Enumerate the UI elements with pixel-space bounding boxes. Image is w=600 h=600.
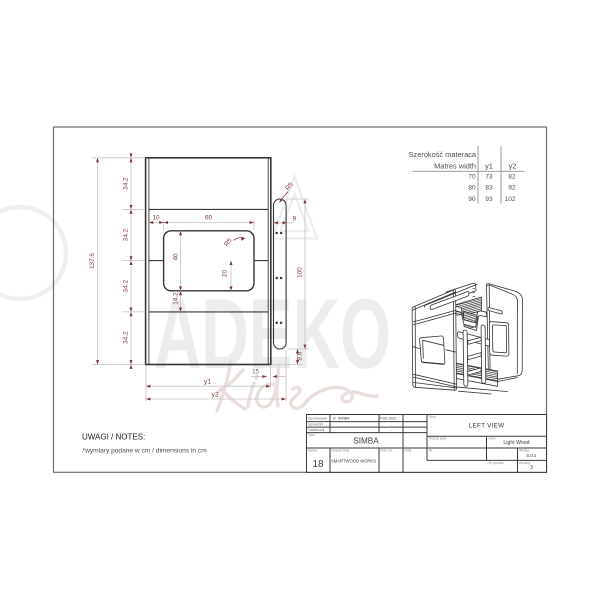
svg-text:Arkuszy: Arkuszy	[519, 461, 531, 465]
svg-text:SIMBA: SIMBA	[353, 436, 379, 445]
svg-text:90: 90	[468, 196, 476, 203]
svg-text:y2: y2	[509, 162, 517, 171]
svg-text:Sprawdził: Sprawdził	[308, 422, 323, 426]
svg-text:92: 92	[508, 185, 516, 192]
svg-text:Data: Data	[405, 449, 412, 453]
svg-text:Numer: Numer	[308, 449, 319, 453]
svg-text:93: 93	[485, 196, 493, 203]
svg-text:14.2: 14.2	[172, 292, 179, 305]
svg-text:Konstruował: Konstruował	[308, 416, 327, 420]
svg-text:3: 3	[530, 465, 533, 471]
svg-text:Tytuł: Tytuł	[308, 433, 315, 437]
svg-text:34.2: 34.2	[122, 331, 129, 344]
svg-text:100: 100	[297, 267, 304, 278]
svg-text:9.6: 9.6	[297, 351, 304, 360]
svg-text:Kolor: Kolor	[489, 437, 497, 441]
svg-text:P.03.2022: P.03.2022	[380, 417, 396, 421]
svg-text:y2: y2	[212, 392, 219, 399]
svg-text:Nazwa firmy: Nazwa firmy	[332, 449, 350, 453]
svg-text:137.6: 137.6	[89, 253, 96, 269]
svg-text:LEFT VIEW: LEFT VIEW	[469, 423, 505, 430]
svg-text:70: 70	[468, 173, 476, 180]
svg-text:20: 20	[221, 270, 228, 278]
svg-text:40: 40	[172, 253, 179, 261]
svg-text:10: 10	[152, 215, 160, 222]
svg-text:D. SIMBA: D. SIMBA	[333, 417, 350, 421]
svg-text:5.0.1: 5.0.1	[526, 453, 537, 458]
svg-text:y1: y1	[204, 379, 211, 386]
svg-text:ADEKO: ADEKO	[154, 278, 391, 389]
svg-text:82: 82	[508, 173, 516, 180]
svg-text:*wymiary podane w cm / dimensi: *wymiary podane w cm / dimensions in cm	[83, 447, 208, 454]
svg-text:y1: y1	[485, 162, 493, 171]
svg-text:18: 18	[312, 459, 324, 470]
svg-text:34.2: 34.2	[122, 177, 129, 190]
svg-text:Zatwierdził: Zatwierdził	[308, 428, 324, 432]
svg-text:34.2: 34.2	[122, 228, 129, 241]
svg-text:UWAGI / NOTES:: UWAGI / NOTES:	[82, 432, 145, 441]
svg-text:Matres width: Matres width	[434, 162, 476, 171]
svg-text:Light Wood: Light Wood	[503, 440, 529, 446]
svg-text:9: 9	[293, 216, 297, 223]
svg-text:60: 60	[205, 215, 213, 222]
svg-text:SMARTWOOD WORKS: SMARTWOOD WORKS	[331, 459, 376, 464]
svg-text:Rzut: Rzut	[429, 415, 436, 419]
svg-text:Ilość szt.: Ilość szt.	[381, 449, 394, 453]
svg-text:15: 15	[252, 369, 260, 376]
svg-text:Nr rysunku: Nr rysunku	[489, 461, 505, 465]
svg-text:102: 102	[505, 196, 516, 203]
svg-text:80: 80	[468, 185, 476, 192]
svg-text:Rodzaj płyty: Rodzaj płyty	[429, 437, 447, 441]
svg-text:Szerokość materaca: Szerokość materaca	[409, 150, 477, 159]
svg-text:73: 73	[485, 173, 493, 180]
svg-text:83: 83	[485, 185, 493, 192]
svg-text:34.2: 34.2	[122, 280, 129, 293]
